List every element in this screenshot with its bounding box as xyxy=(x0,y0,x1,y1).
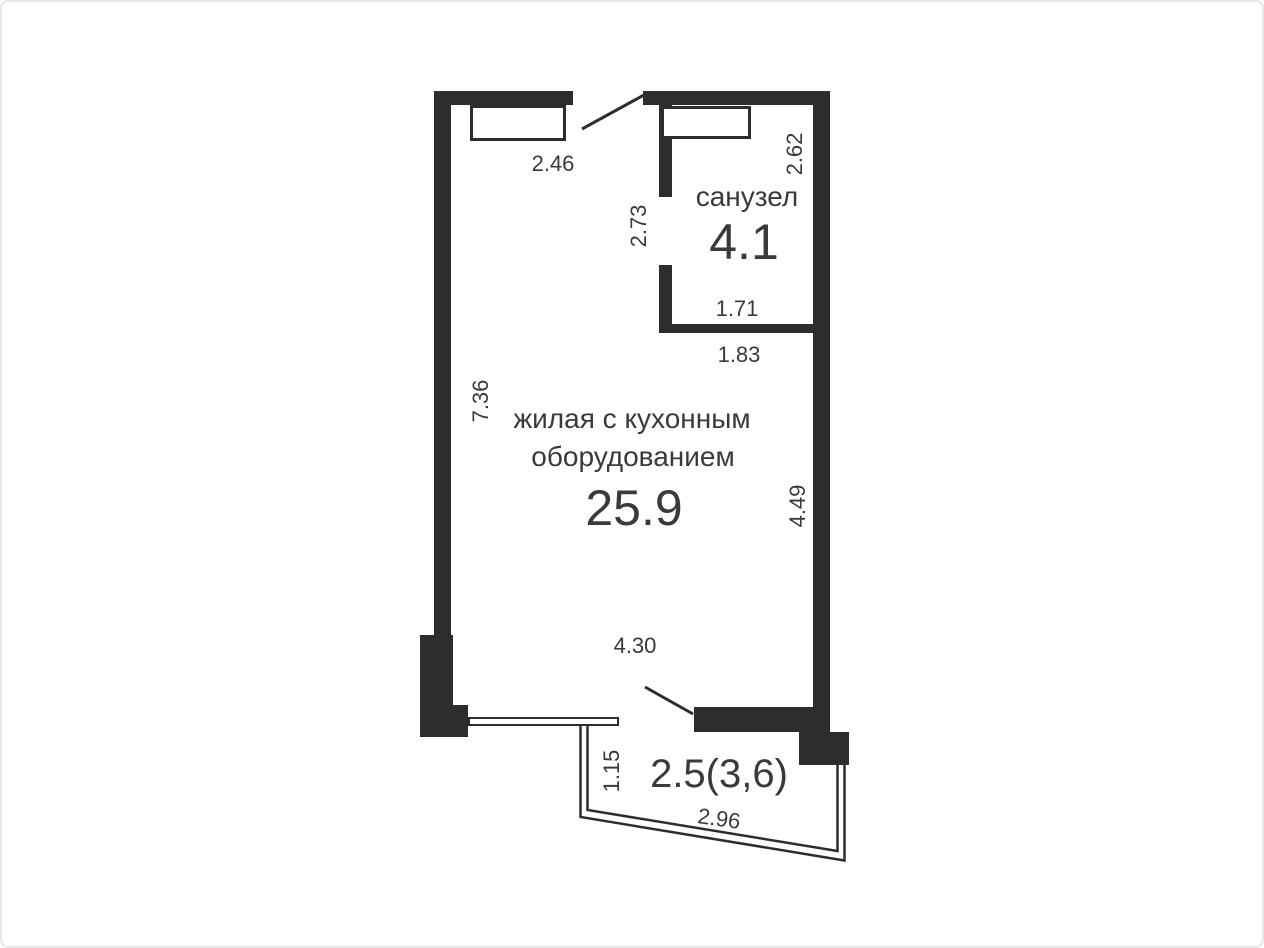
dimension-balcony-depth: 1.15 xyxy=(601,750,623,793)
bathroom-window xyxy=(661,106,751,139)
balcony-door-swing xyxy=(645,687,693,714)
living-window xyxy=(470,105,566,141)
right-wall xyxy=(813,91,830,732)
dimension-balcony-width: 2.96 xyxy=(696,805,741,833)
bottom-wall xyxy=(694,707,830,732)
living-room-name-line2: оборудованием xyxy=(531,443,734,471)
dimension-window-width: 2.46 xyxy=(532,153,575,175)
entrance-door-swing xyxy=(582,95,644,129)
bathroom-wall-lower xyxy=(659,265,672,333)
balcony-rail xyxy=(468,717,619,726)
floor-plan-page: жилая с кухонным оборудованием 25.9 сану… xyxy=(0,0,1264,948)
bathroom-bottom-wall xyxy=(659,324,813,333)
bathroom-area: 4.1 xyxy=(709,217,779,267)
dimension-bathroom-right-depth: 2.62 xyxy=(784,133,806,176)
bottom-right-step-block xyxy=(799,732,849,765)
dimension-bathroom-inner-width: 1.71 xyxy=(716,298,759,320)
top-wall-right xyxy=(643,91,830,105)
dimension-bathroom-left-depth: 2.73 xyxy=(628,205,650,248)
living-room-area: 25.9 xyxy=(585,483,682,533)
bathroom-name: санузел xyxy=(696,183,799,211)
dimension-bathroom-outer-width: 1.83 xyxy=(718,344,761,366)
top-wall-left xyxy=(434,91,573,105)
dimension-living-left-depth: 7.36 xyxy=(470,380,492,423)
plan-lines-layer xyxy=(2,2,1264,948)
dimension-living-width: 4.30 xyxy=(614,635,657,657)
left-pillar xyxy=(420,635,453,737)
dimension-living-right-depth: 4.49 xyxy=(787,485,809,528)
living-room-name-line1: жилая с кухонным xyxy=(513,405,750,433)
left-pillar-foot xyxy=(453,705,468,737)
balcony-area: 2.5(3,6) xyxy=(650,754,788,794)
left-wall xyxy=(434,91,451,637)
